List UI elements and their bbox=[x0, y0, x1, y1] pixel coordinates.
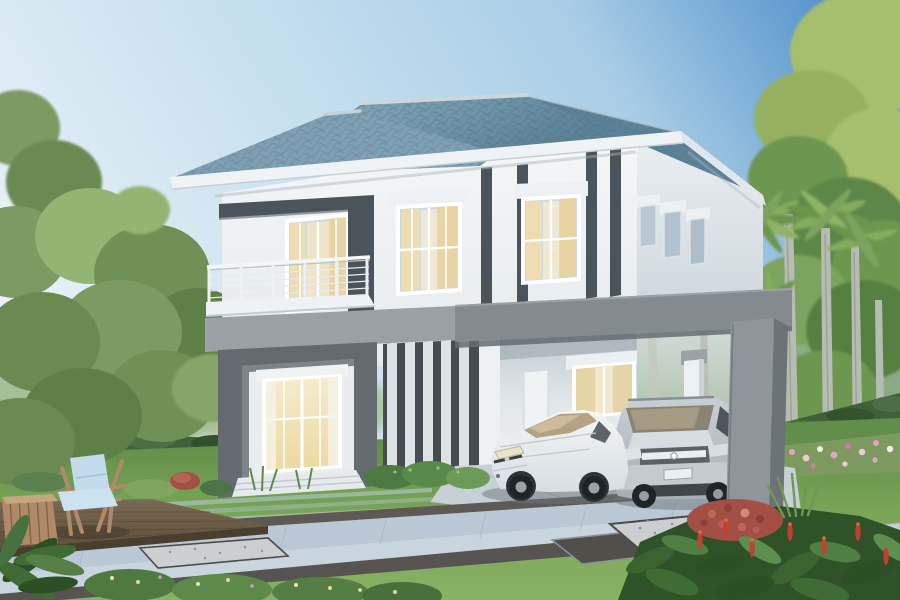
suv-plate bbox=[664, 468, 692, 480]
right-front-window bbox=[514, 181, 588, 285]
suv-emblem bbox=[671, 453, 677, 459]
scene-canvas bbox=[0, 0, 900, 600]
center-window bbox=[388, 189, 468, 296]
chair-shadow bbox=[46, 525, 130, 539]
sedan-emblem bbox=[505, 457, 510, 462]
glowing-tall-window bbox=[256, 364, 348, 474]
house-exterior-rendering bbox=[0, 0, 900, 600]
louver-screen bbox=[383, 337, 500, 477]
